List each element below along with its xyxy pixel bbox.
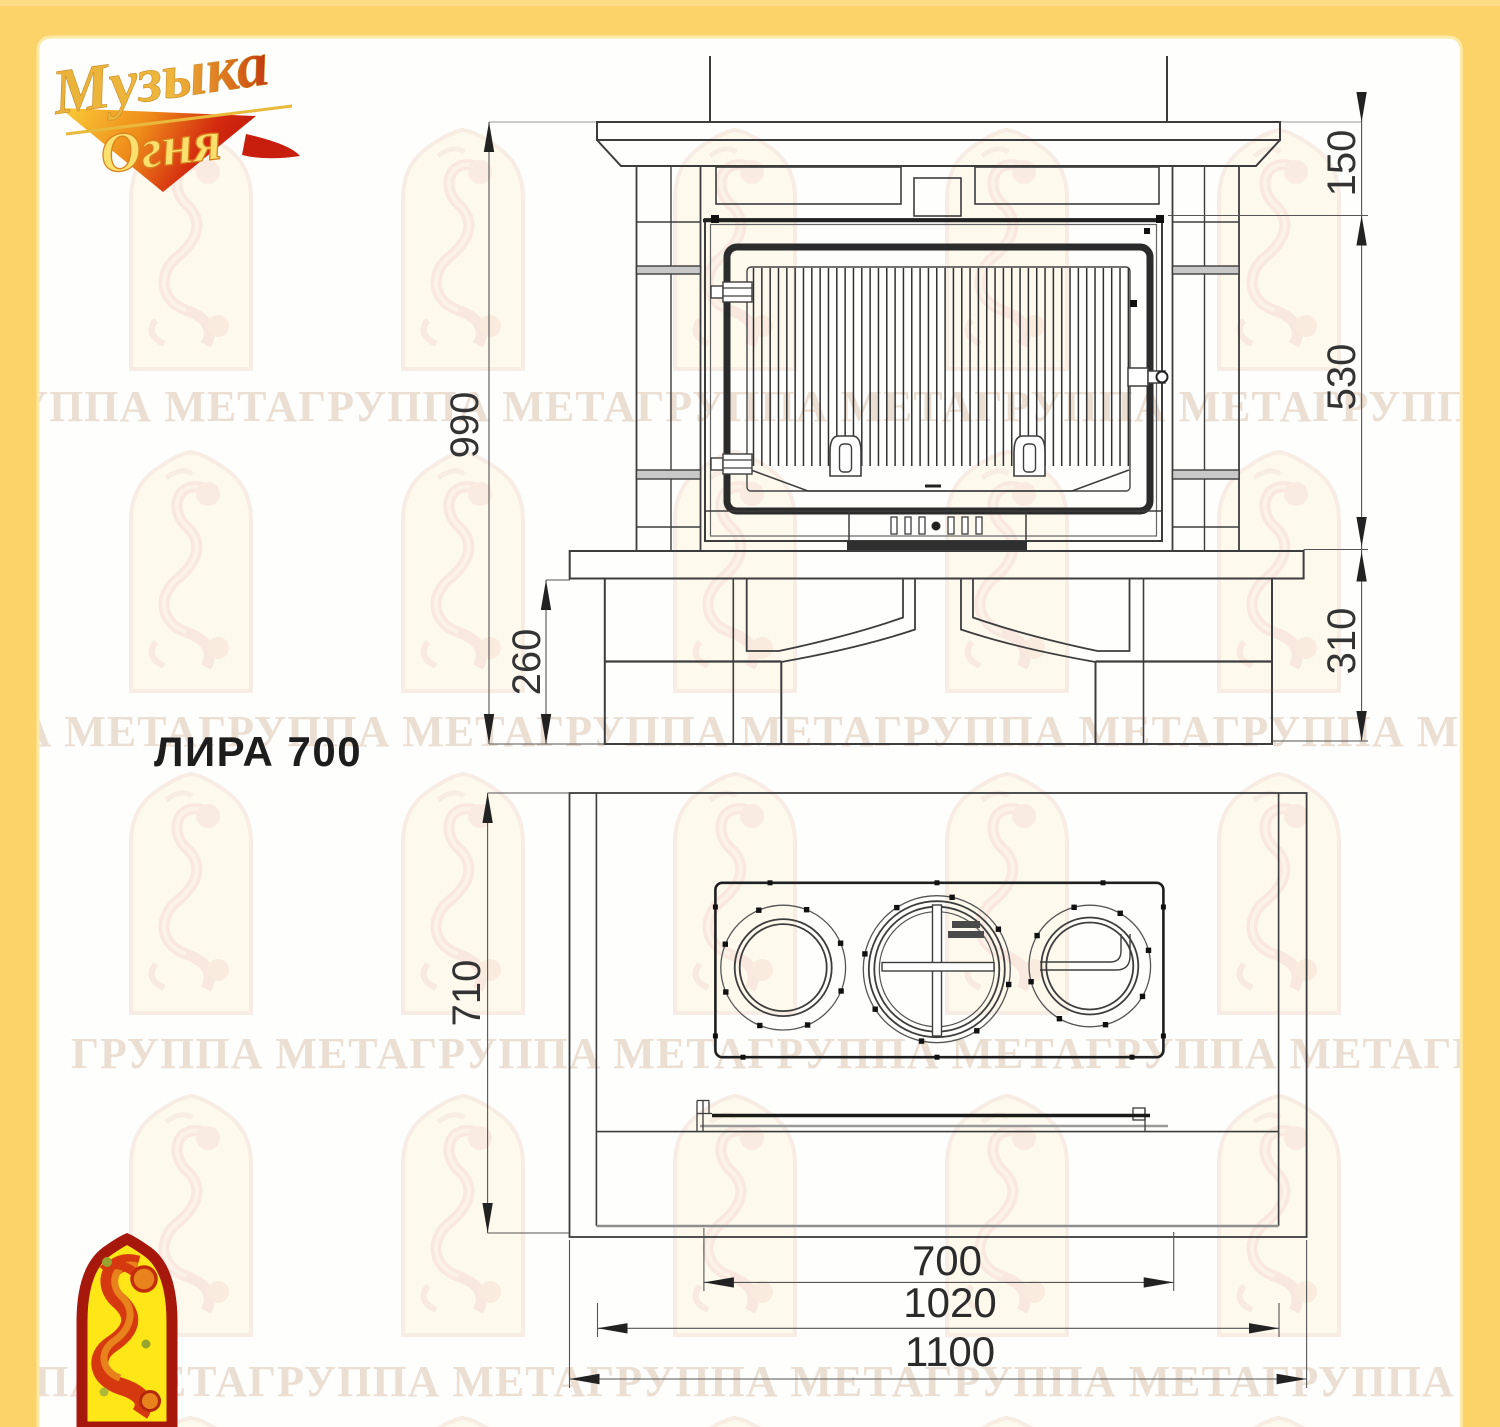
svg-text:150: 150 bbox=[1320, 130, 1364, 197]
svg-text:710: 710 bbox=[445, 960, 489, 1027]
svg-text:ГРУППА МЕТАГРУППА МЕТАГРУППА М: ГРУППА МЕТАГРУППА МЕТАГРУППА МЕТАГРУППА … bbox=[71, 1029, 1500, 1078]
svg-text:1100: 1100 bbox=[905, 1328, 995, 1375]
svg-text:1020: 1020 bbox=[903, 1279, 996, 1326]
svg-text:ГРУППА МЕТАГРУППА МЕТАГРУППА М: ГРУППА МЕТАГРУППА МЕТАГРУППА МЕТАГРУППА … bbox=[0, 382, 1500, 431]
svg-text:260: 260 bbox=[505, 629, 549, 696]
svg-text:ЛИРА 700: ЛИРА 700 bbox=[154, 728, 362, 775]
svg-text:ГРУППА МЕТАГРУППА МЕТАГРУППА М: ГРУППА МЕТАГРУППА МЕТАГРУППА МЕТАГРУППА … bbox=[0, 1357, 1500, 1406]
svg-text:990: 990 bbox=[443, 392, 487, 459]
svg-text:530: 530 bbox=[1320, 344, 1364, 411]
svg-text:700: 700 bbox=[912, 1237, 982, 1284]
svg-text:310: 310 bbox=[1320, 608, 1364, 675]
